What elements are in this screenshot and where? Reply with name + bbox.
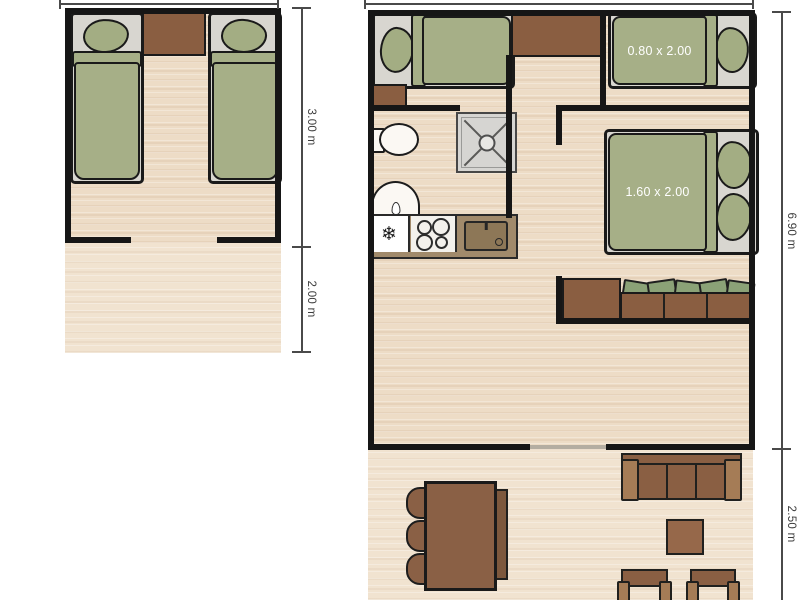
- sink-faucet: [485, 223, 488, 230]
- wardrobe: [511, 13, 606, 57]
- wall-bathroom: [506, 55, 512, 218]
- sink-drain: [495, 238, 503, 246]
- bench-seat: [620, 280, 754, 320]
- dimension-line-vertical: [301, 8, 303, 353]
- dimension-tick: [752, 0, 754, 9]
- snowflake-icon: ❄: [381, 225, 397, 244]
- dimension-label-building-depth: 6.90 m: [785, 213, 797, 250]
- wall-hallway: [600, 10, 606, 111]
- wall: [606, 444, 755, 450]
- wall: [368, 10, 755, 16]
- pillow: [220, 18, 268, 54]
- wall-master-bedroom: [556, 276, 562, 324]
- dimension-label-terrace-depth: 2.00 m: [305, 281, 317, 318]
- dimension-tick: [277, 0, 279, 9]
- dimension-label-room-depth: 3.00 m: [305, 109, 317, 146]
- pillow: [378, 26, 415, 74]
- duvet: [212, 62, 278, 180]
- dimension-label-terrace-depth: 2.50 m: [785, 506, 797, 543]
- wall-master-bedroom: [556, 105, 755, 111]
- dimension-tick: [292, 351, 311, 353]
- stove-burner: [432, 218, 450, 236]
- shower-drain-icon: [478, 134, 495, 151]
- sofa-seam: [695, 465, 697, 498]
- kitchen-counter: ❄: [368, 214, 518, 259]
- wall-master-bedroom: [556, 111, 562, 145]
- pillow: [82, 18, 130, 54]
- single-bed-top-right: 0.80 x 2.00: [608, 12, 757, 89]
- sliding-door: [530, 445, 606, 449]
- bench-seam: [663, 294, 665, 320]
- dimension-tick: [292, 246, 311, 248]
- armchair-armrest: [686, 581, 699, 600]
- sofa-seam: [666, 465, 668, 498]
- fridge: ❄: [370, 216, 410, 252]
- wall-door-right-segment: [217, 237, 281, 243]
- stove: [411, 216, 457, 252]
- dimension-line-top: [365, 3, 754, 5]
- wall: [275, 8, 281, 243]
- wall-door-left-segment: [65, 237, 131, 243]
- duvet: [74, 62, 140, 180]
- sofa-seat: [636, 463, 727, 500]
- armchair: [686, 569, 740, 600]
- duvet: [422, 16, 511, 85]
- bed-size-label: 0.80 x 2.00: [627, 44, 691, 58]
- sofa: [621, 453, 742, 500]
- single-bed-top-left: [372, 12, 515, 89]
- bench-seam: [706, 294, 708, 320]
- dimension-tick: [292, 7, 311, 9]
- kitchen-sink: [464, 221, 508, 251]
- twin-bed-right: [208, 12, 282, 184]
- sofa-armrest: [724, 459, 742, 501]
- duvet: 0.80 x 2.00: [612, 16, 707, 85]
- dimension-line-vertical: [781, 12, 783, 600]
- dimension-line-top: [60, 3, 278, 5]
- stove-burner: [417, 220, 432, 235]
- pillow: [715, 192, 753, 242]
- wall: [749, 10, 755, 450]
- armchair-armrest: [617, 581, 630, 600]
- wall: [368, 444, 530, 450]
- pillow: [715, 140, 753, 190]
- stove-burner: [435, 236, 448, 249]
- armchair: [617, 569, 672, 600]
- duvet: 1.60 x 2.00: [608, 133, 707, 251]
- dimension-tick: [772, 448, 791, 450]
- sofa-armrest: [621, 459, 639, 501]
- floor-plan-canvas: 3.00 m 2.00 m 0.80 x 2.00: [0, 0, 800, 600]
- twin-bed-left: [70, 12, 144, 184]
- left-terrace-floor: [65, 243, 281, 353]
- toilet: [369, 122, 417, 154]
- stove-burner: [416, 234, 433, 251]
- dimension-tick: [772, 11, 791, 13]
- dimension-tick: [364, 0, 366, 9]
- bed-size-label: 1.60 x 2.00: [625, 185, 689, 199]
- double-bed: 1.60 x 2.00: [604, 129, 759, 255]
- armchair-armrest: [659, 581, 672, 600]
- nightstand: [142, 12, 206, 56]
- wall: [368, 10, 374, 450]
- pillow: [713, 26, 750, 74]
- toilet-bowl: [379, 123, 419, 156]
- wall: [65, 8, 71, 243]
- armchair-armrest: [727, 581, 740, 600]
- wall: [65, 8, 281, 14]
- dimension-tick: [59, 0, 61, 9]
- wall-master-bedroom: [556, 318, 755, 324]
- wall-bathroom: [368, 105, 460, 111]
- coffee-table: [666, 519, 704, 555]
- dining-table: [424, 481, 497, 591]
- dresser: [562, 278, 621, 322]
